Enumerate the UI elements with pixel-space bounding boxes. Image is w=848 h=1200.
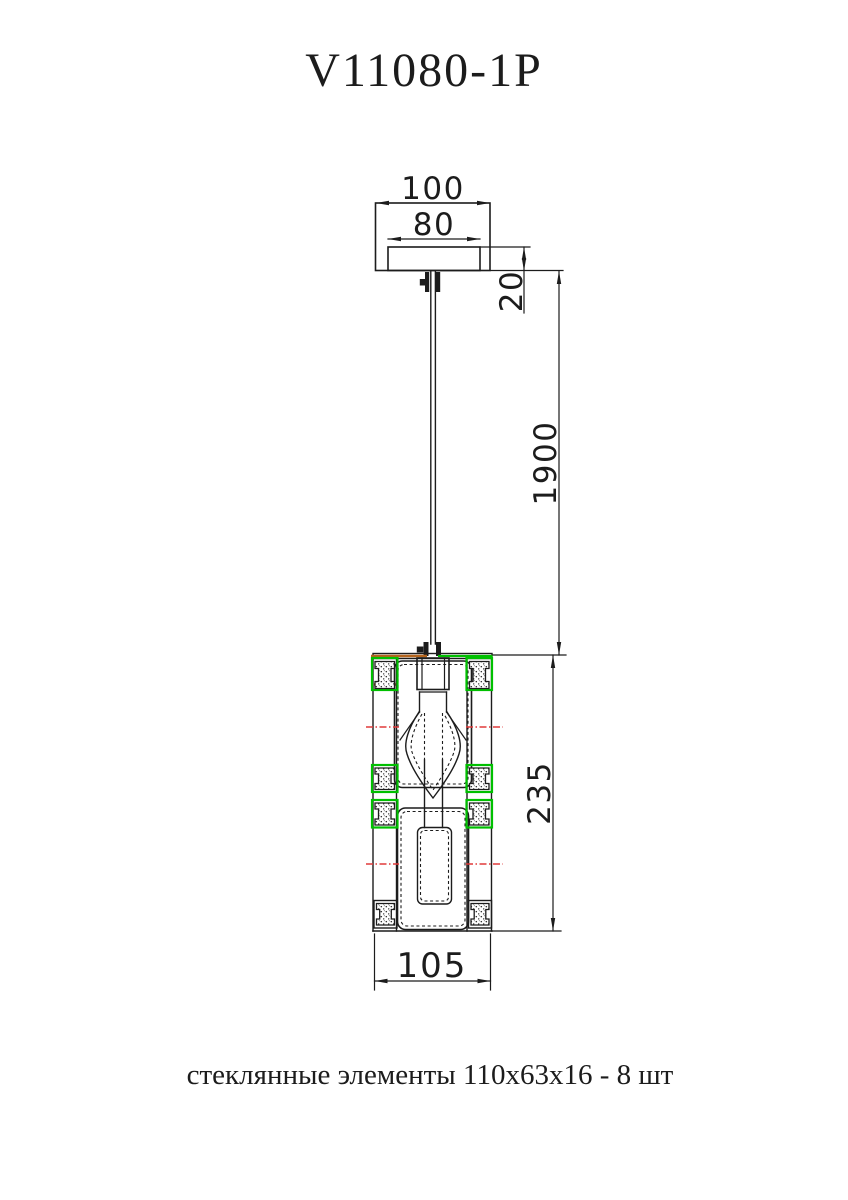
dim-label-235: 235 (522, 761, 558, 825)
rod-top-connector (420, 272, 440, 292)
glass-element (377, 904, 395, 926)
suspension-rod (417, 271, 441, 656)
glass-element (470, 803, 490, 825)
glass-element (375, 803, 395, 825)
dimension-canopy-80: 80 (388, 207, 480, 243)
dimension-shade-105: 105 (375, 934, 491, 990)
bulb-inner (411, 714, 455, 790)
drawing-page: V11080-1P 100 80 20 (0, 0, 848, 1200)
shade-upper-frame (395, 661, 472, 788)
glass-element (375, 662, 395, 689)
glass-element (470, 768, 490, 790)
dim-label-100: 100 (401, 171, 465, 207)
dimension-shade-235: 235 (493, 655, 566, 931)
dim-label-1900: 1900 (528, 421, 564, 506)
shade-lower-frame (398, 808, 469, 930)
canopy-inner-plate (388, 247, 480, 271)
glass-element (471, 904, 489, 926)
dimension-canopy-100: 100 (376, 171, 490, 207)
glass-elements-caption: стеклянные элементы 110x63x16 - 8 шт (187, 1059, 674, 1091)
dimension-suspension-1900: 1900 (528, 271, 564, 655)
glass-elements (372, 658, 492, 928)
glass-element (470, 662, 490, 689)
bulb (406, 712, 461, 798)
technical-drawing: V11080-1P 100 80 20 (0, 0, 848, 1200)
candle-holder (418, 828, 452, 905)
glass-element (375, 768, 395, 790)
dim-label-105: 105 (397, 946, 468, 986)
dim-label-20: 20 (494, 270, 530, 312)
lamp-shade (366, 654, 503, 932)
center-tube (425, 713, 443, 828)
drawing-title: V11080-1P (305, 44, 543, 97)
socket-assembly (400, 658, 466, 904)
dimension-canopy-20: 20 (480, 247, 563, 313)
dim-label-80: 80 (413, 207, 455, 243)
